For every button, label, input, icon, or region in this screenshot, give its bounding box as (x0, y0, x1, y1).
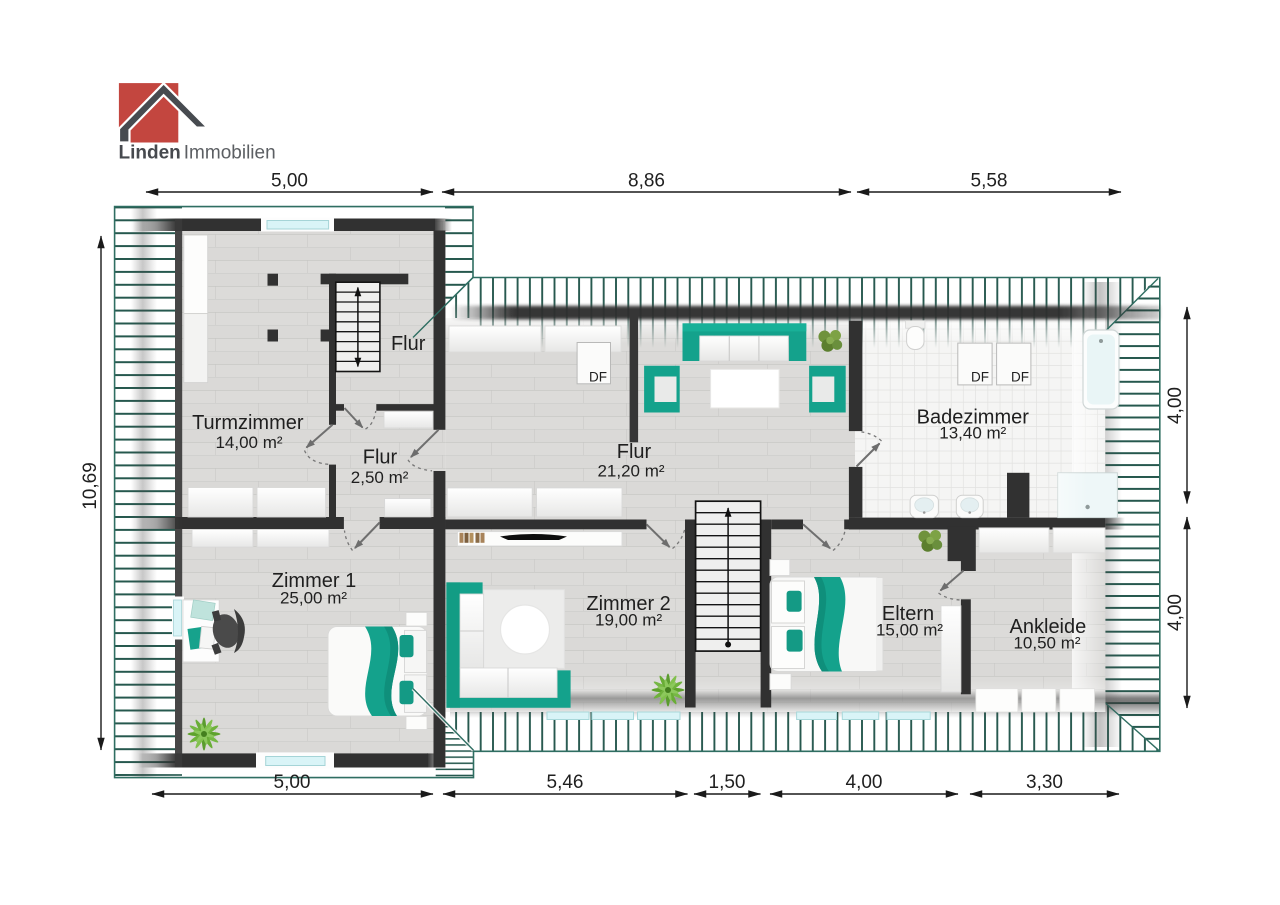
svg-text:21,20 m²: 21,20 m² (597, 461, 664, 480)
svg-text:19,00 m²: 19,00 m² (595, 611, 662, 630)
svg-text:4,00: 4,00 (1165, 594, 1186, 631)
svg-text:DF: DF (589, 370, 607, 385)
svg-text:1,50: 1,50 (709, 772, 746, 793)
svg-text:4,00: 4,00 (846, 772, 883, 793)
svg-text:3,30: 3,30 (1026, 772, 1063, 793)
svg-text:13,40 m²: 13,40 m² (939, 424, 1006, 443)
svg-text:25,00 m²: 25,00 m² (280, 589, 347, 608)
svg-text:LindenImmobilien: LindenImmobilien (119, 143, 276, 164)
svg-text:10,69: 10,69 (80, 462, 101, 510)
svg-text:DF: DF (1011, 369, 1029, 384)
svg-text:8,86: 8,86 (628, 171, 665, 192)
svg-text:Flur: Flur (391, 333, 426, 355)
svg-text:5,00: 5,00 (274, 772, 311, 793)
svg-text:5,00: 5,00 (271, 171, 308, 192)
svg-text:4,00: 4,00 (1165, 387, 1186, 424)
svg-text:14,00 m²: 14,00 m² (215, 433, 282, 452)
svg-text:5,46: 5,46 (547, 772, 584, 793)
svg-text:DF: DF (971, 369, 989, 384)
svg-text:10,50 m²: 10,50 m² (1013, 634, 1080, 653)
svg-text:5,58: 5,58 (971, 171, 1008, 192)
svg-text:Turmzimmer: Turmzimmer (192, 412, 304, 434)
svg-text:Flur: Flur (617, 441, 652, 463)
svg-text:Flur: Flur (363, 447, 398, 469)
svg-text:2,50 m²: 2,50 m² (351, 468, 409, 487)
svg-text:15,00 m²: 15,00 m² (876, 620, 943, 639)
